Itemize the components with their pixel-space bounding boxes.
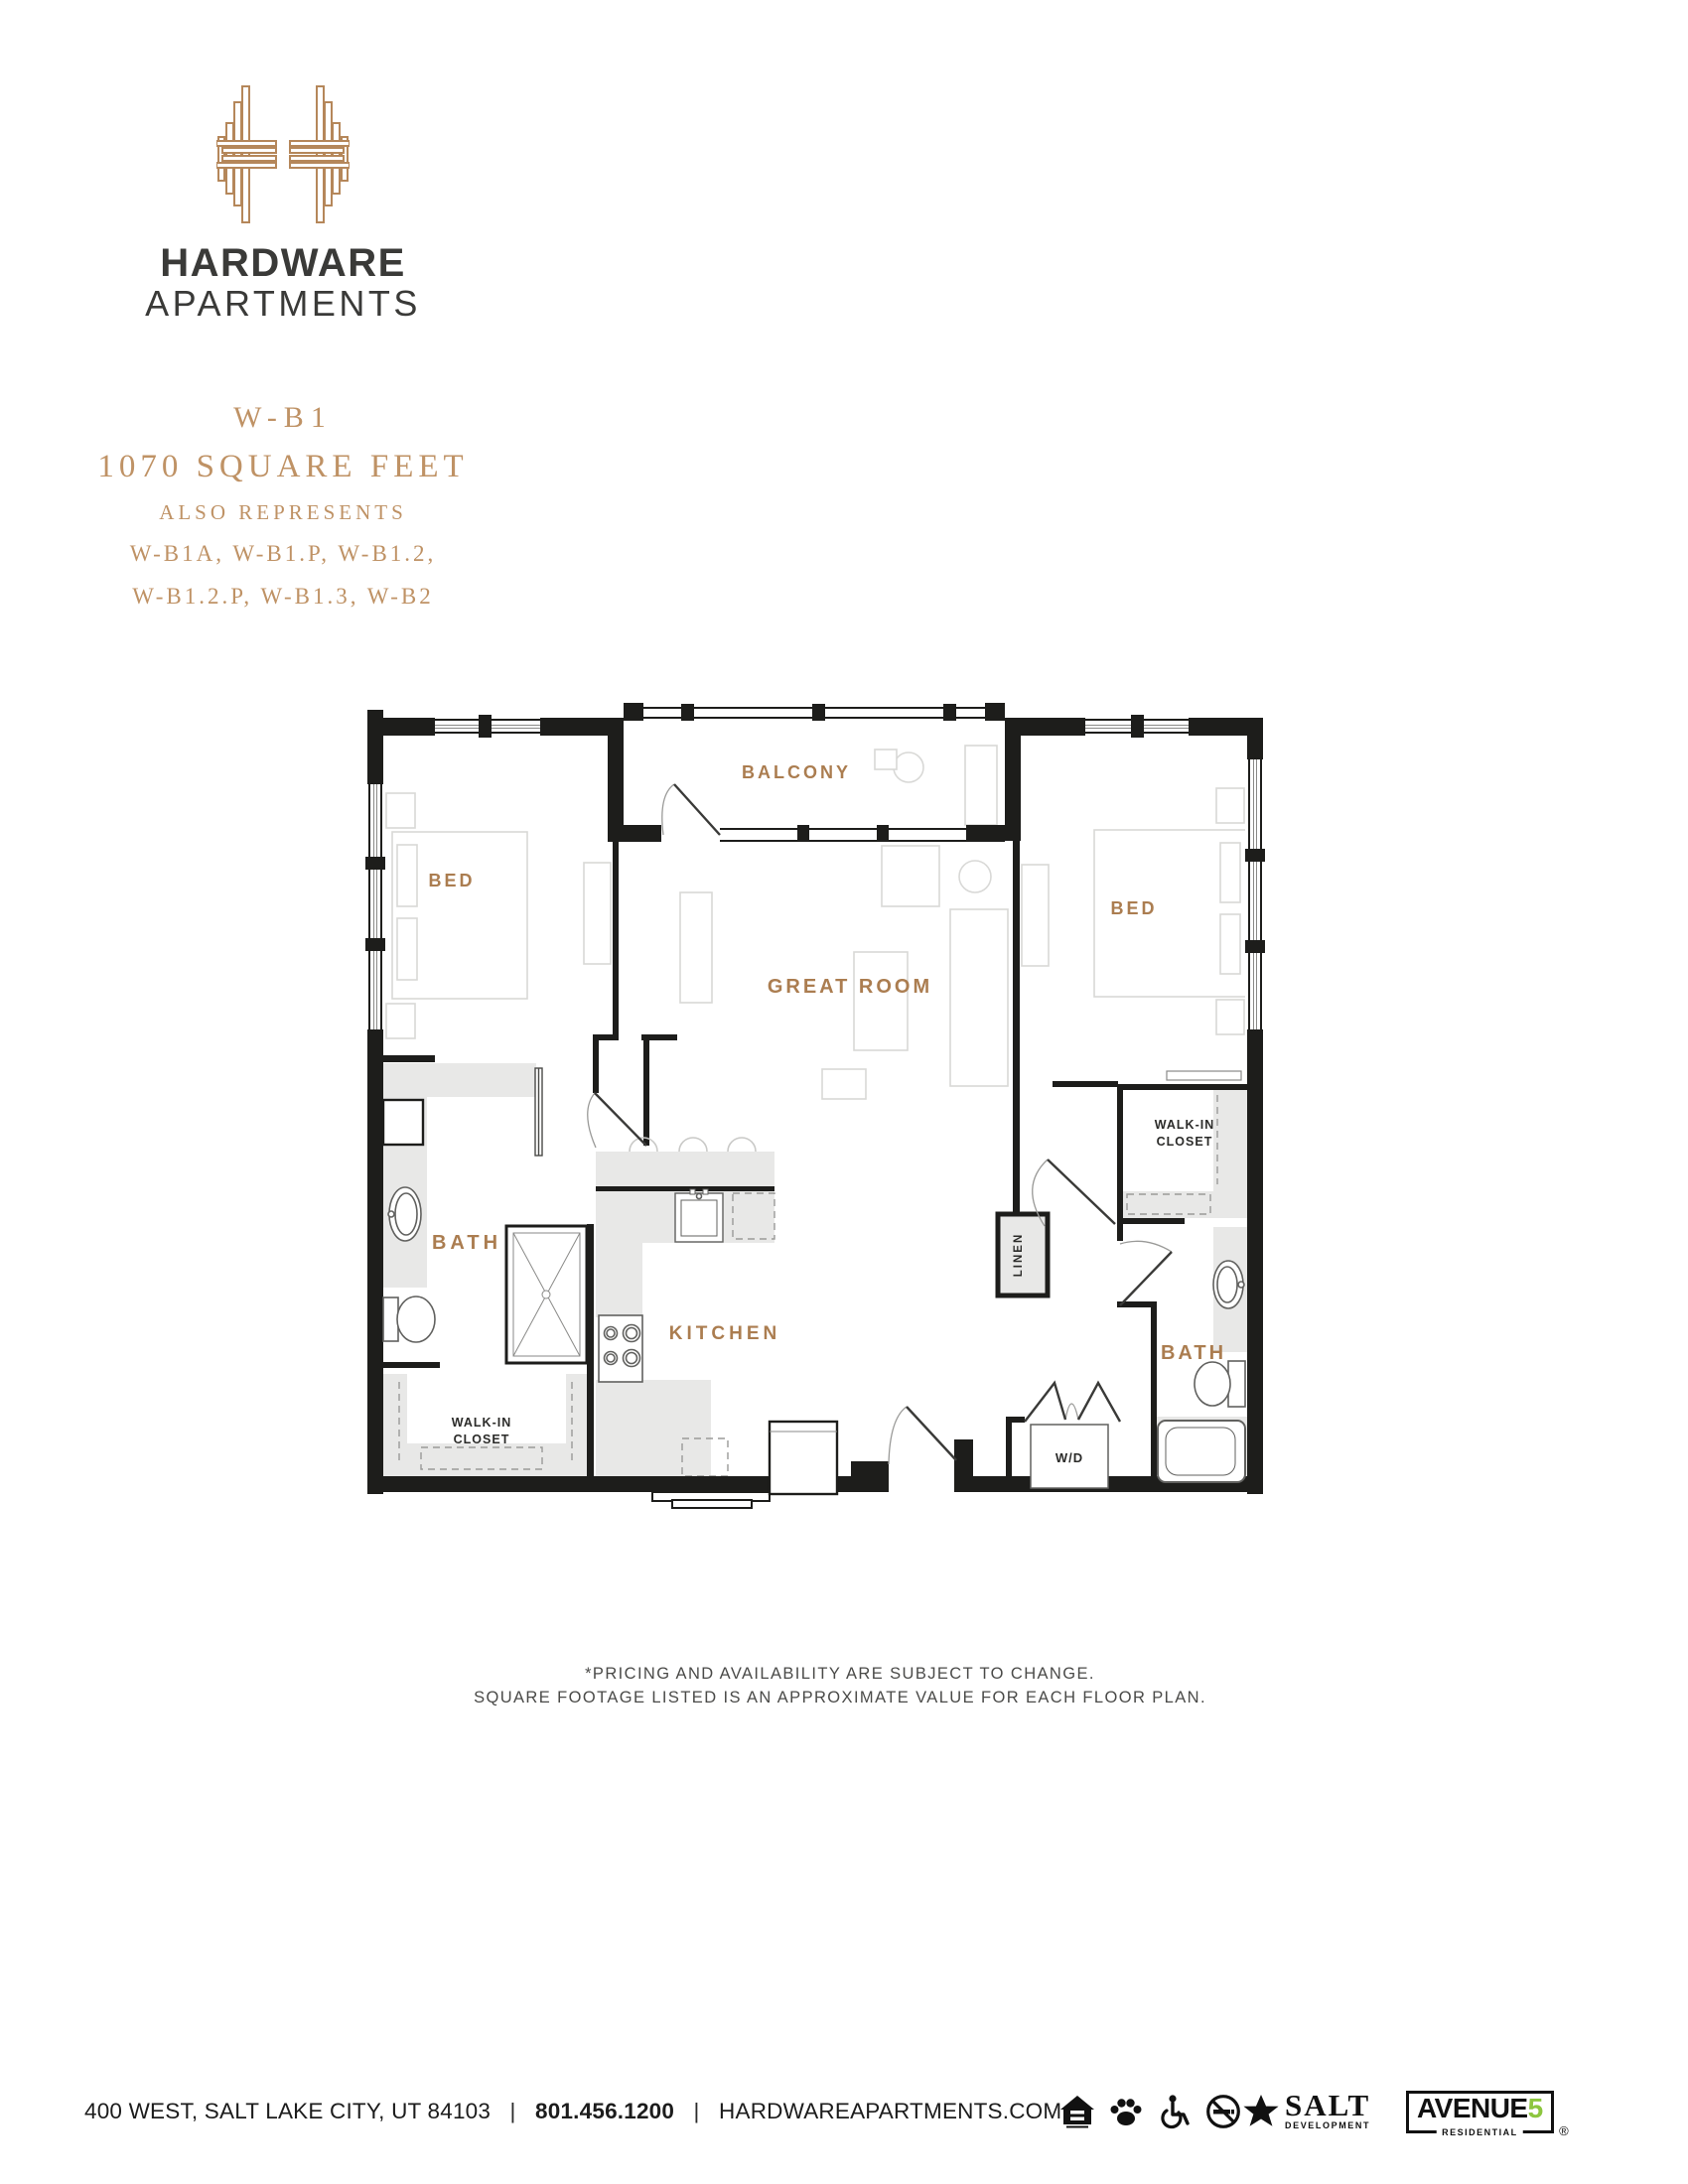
salt-logo-sub: DEVELOPMENT — [1285, 2120, 1370, 2130]
plan-variants-line1: W-B1A, W-B1.P, W-B1.2, — [35, 541, 531, 567]
balcony-label: BALCONY — [742, 762, 851, 782]
entry-steps — [652, 1492, 770, 1508]
plan-header: W-B1 1070 SQUARE FEET ALSO REPRESENTS W-… — [35, 401, 531, 610]
avenue5-sub: RESIDENTIAL — [1437, 2127, 1523, 2137]
bed-right-label: BED — [1110, 898, 1157, 918]
hardware-h-logo-icon — [216, 85, 350, 226]
wardrobe-sliding-door — [535, 1068, 542, 1156]
kitchen-bar-edge — [596, 1186, 774, 1191]
linen-label: LINEN — [1013, 1233, 1025, 1278]
kitchen-label: KITCHEN — [669, 1323, 780, 1344]
doors — [588, 784, 1172, 1464]
plan-square-feet: 1070 SQUARE FEET — [35, 449, 531, 485]
window-top-right — [1085, 715, 1189, 738]
accessible-icon — [1156, 2093, 1194, 2130]
bath-left-cabinet — [383, 1100, 423, 1145]
equal-housing-icon — [1058, 2093, 1096, 2130]
avenue5-five: 5 — [1528, 2093, 1543, 2123]
salt-logo-word: SALT — [1285, 2091, 1370, 2119]
plan-variants-line2: W-B1.2.P, W-B1.3, W-B2 — [35, 584, 531, 610]
avenue5-logo: AVENUE5 RESIDENTIAL ® — [1406, 2091, 1554, 2133]
window-left-wall — [365, 784, 385, 1029]
hardware-logo — [216, 85, 350, 226]
also-represents-label: ALSO REPRESENTS — [35, 500, 531, 525]
bed-left-label: BED — [428, 871, 475, 890]
walkin-right-label-line2: CLOSET — [1157, 1135, 1213, 1149]
pet-friendly-icon — [1107, 2093, 1145, 2130]
brand-name-line2: APARTMENTS — [60, 284, 506, 324]
footer-phone[interactable]: 801.456.1200 — [535, 2099, 674, 2123]
closet-shelf — [1167, 1071, 1241, 1080]
walkin-left-label-line2: CLOSET — [454, 1433, 510, 1446]
disclaimer-line2: SQUARE FOOTAGE LISTED IS AN APPROXIMATE … — [0, 1686, 1680, 1709]
window-right-wall — [1245, 759, 1265, 1029]
floor-plan: BALCONY BED BED GREAT ROOM BATH KITCHEN … — [357, 700, 1311, 1509]
walkin-right-label-line1: WALK-IN — [1155, 1118, 1214, 1132]
window-top-left — [435, 715, 540, 738]
footer-contact: 400 WEST, SALT LAKE CITY, UT 84103 | 801… — [84, 2099, 1061, 2124]
amenity-badges — [1058, 2093, 1242, 2130]
balcony-top-rail — [624, 703, 1005, 721]
footer: 400 WEST, SALT LAKE CITY, UT 84103 | 801… — [0, 2083, 1688, 2162]
plan-code: W-B1 — [35, 401, 531, 435]
bath-right-label: BATH — [1161, 1342, 1226, 1364]
balcony-lower-rail — [608, 825, 1005, 842]
salt-development-logo: SALT DEVELOPMENT — [1243, 2091, 1370, 2130]
floor-plan-drawing: BALCONY BED BED GREAT ROOM BATH KITCHEN … — [357, 700, 1311, 1509]
great-room-label: GREAT ROOM — [768, 976, 932, 998]
brand-name-line1: HARDWARE — [60, 242, 506, 284]
avenue5-word: AVENUE — [1417, 2093, 1528, 2123]
washer-dryer-label: W/D — [1055, 1450, 1083, 1465]
disclaimer-line1: *PRICING AND AVAILABILITY ARE SUBJECT TO… — [0, 1662, 1680, 1686]
walkin-left-label-line1: WALK-IN — [452, 1416, 511, 1430]
registered-mark-icon: ® — [1559, 2123, 1569, 2138]
footer-address: 400 WEST, SALT LAKE CITY, UT 84103 — [84, 2099, 491, 2123]
brand-name: HARDWARE APARTMENTS — [60, 242, 506, 324]
footer-separator-1: | — [510, 2099, 516, 2123]
furniture — [386, 746, 1246, 1099]
salt-star-icon — [1243, 2095, 1279, 2128]
bath-left-label: BATH — [432, 1232, 501, 1254]
footer-separator-2: | — [694, 2099, 700, 2123]
footer-website[interactable]: HARDWAREAPARTMENTS.COM — [719, 2099, 1061, 2123]
no-smoking-icon — [1204, 2093, 1242, 2130]
disclaimer: *PRICING AND AVAILABILITY ARE SUBJECT TO… — [0, 1662, 1680, 1709]
